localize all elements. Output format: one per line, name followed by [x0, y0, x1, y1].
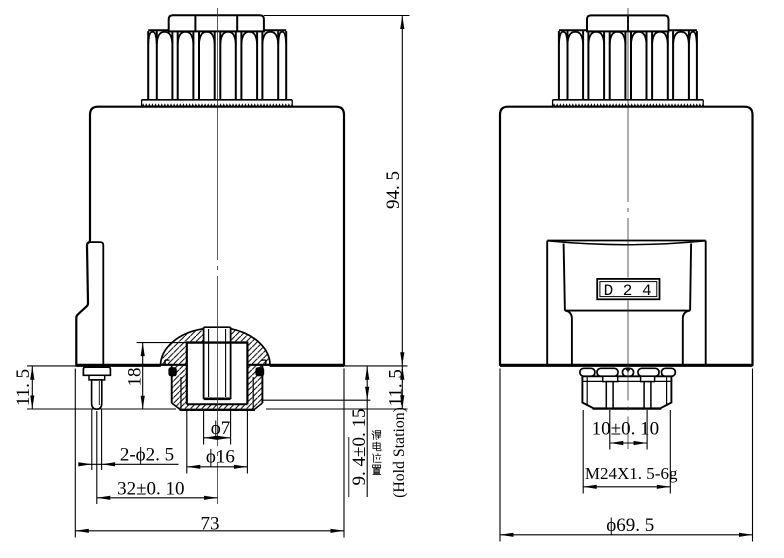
svg-text:M24X1. 5-6g: M24X1. 5-6g — [585, 464, 678, 483]
svg-text:18: 18 — [125, 368, 146, 387]
svg-text:(Hold Station): (Hold Station) — [391, 407, 408, 498]
svg-text:94. 5: 94. 5 — [383, 171, 404, 209]
svg-text:32±0. 10: 32±0. 10 — [117, 478, 184, 499]
svg-text:ϕ16: ϕ16 — [206, 447, 235, 468]
svg-text:11. 5: 11. 5 — [13, 369, 34, 406]
svg-text:10±0. 10: 10±0. 10 — [592, 418, 659, 439]
svg-text:11. 5: 11. 5 — [385, 369, 406, 406]
svg-text:73: 73 — [201, 514, 220, 535]
svg-text:9. 4±0. 15: 9. 4±0. 15 — [349, 409, 370, 486]
svg-text:D 2 4: D 2 4 — [604, 282, 652, 300]
svg-text:ϕ69. 5: ϕ69. 5 — [606, 515, 654, 536]
svg-text:2-ϕ2. 5: 2-ϕ2. 5 — [120, 444, 174, 465]
svg-text:ϕ7: ϕ7 — [211, 418, 231, 439]
